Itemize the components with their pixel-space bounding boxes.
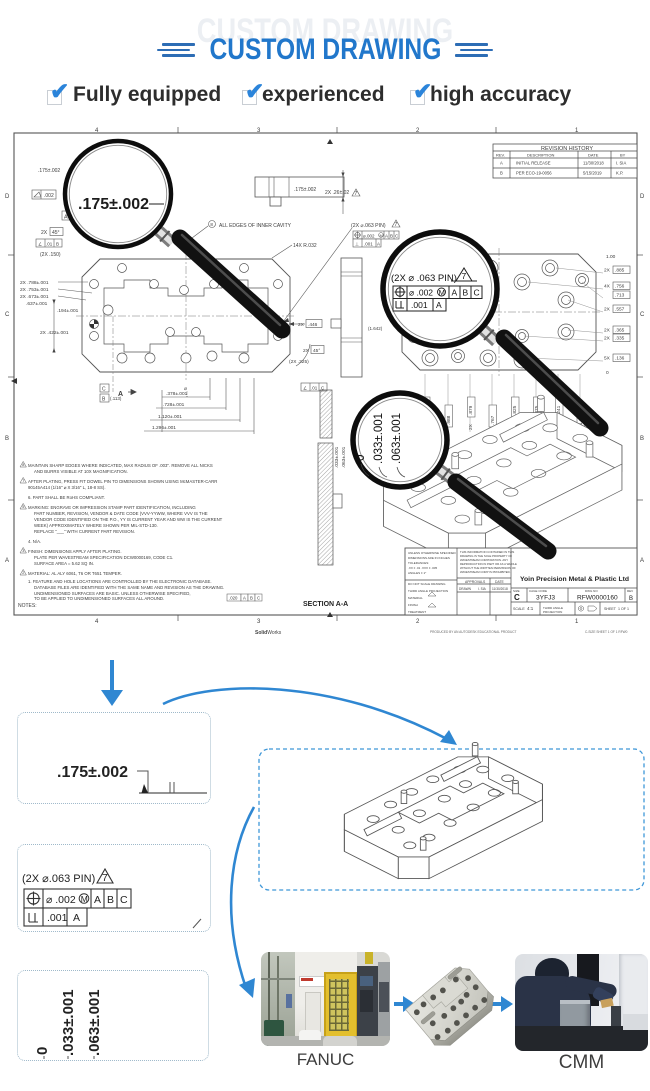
svg-text:.175±.002: .175±.002	[57, 764, 128, 781]
svg-text:.001: .001	[47, 912, 68, 924]
svg-text:B: B	[107, 894, 114, 906]
svg-text:⌀ .002: ⌀ .002	[46, 894, 76, 906]
svg-text:.063±.001: .063±.001	[86, 989, 103, 1056]
svg-text:A: A	[73, 912, 80, 924]
svg-text:A: A	[94, 894, 101, 906]
svg-text:M: M	[81, 894, 88, 904]
svg-text:.033±.001: .033±.001	[60, 989, 77, 1056]
svg-text:C: C	[120, 894, 128, 906]
svg-text:(2X ⌀.063 PIN): (2X ⌀.063 PIN)	[22, 873, 95, 885]
svg-text:7: 7	[102, 872, 108, 884]
svg-text:0: 0	[34, 1047, 51, 1055]
